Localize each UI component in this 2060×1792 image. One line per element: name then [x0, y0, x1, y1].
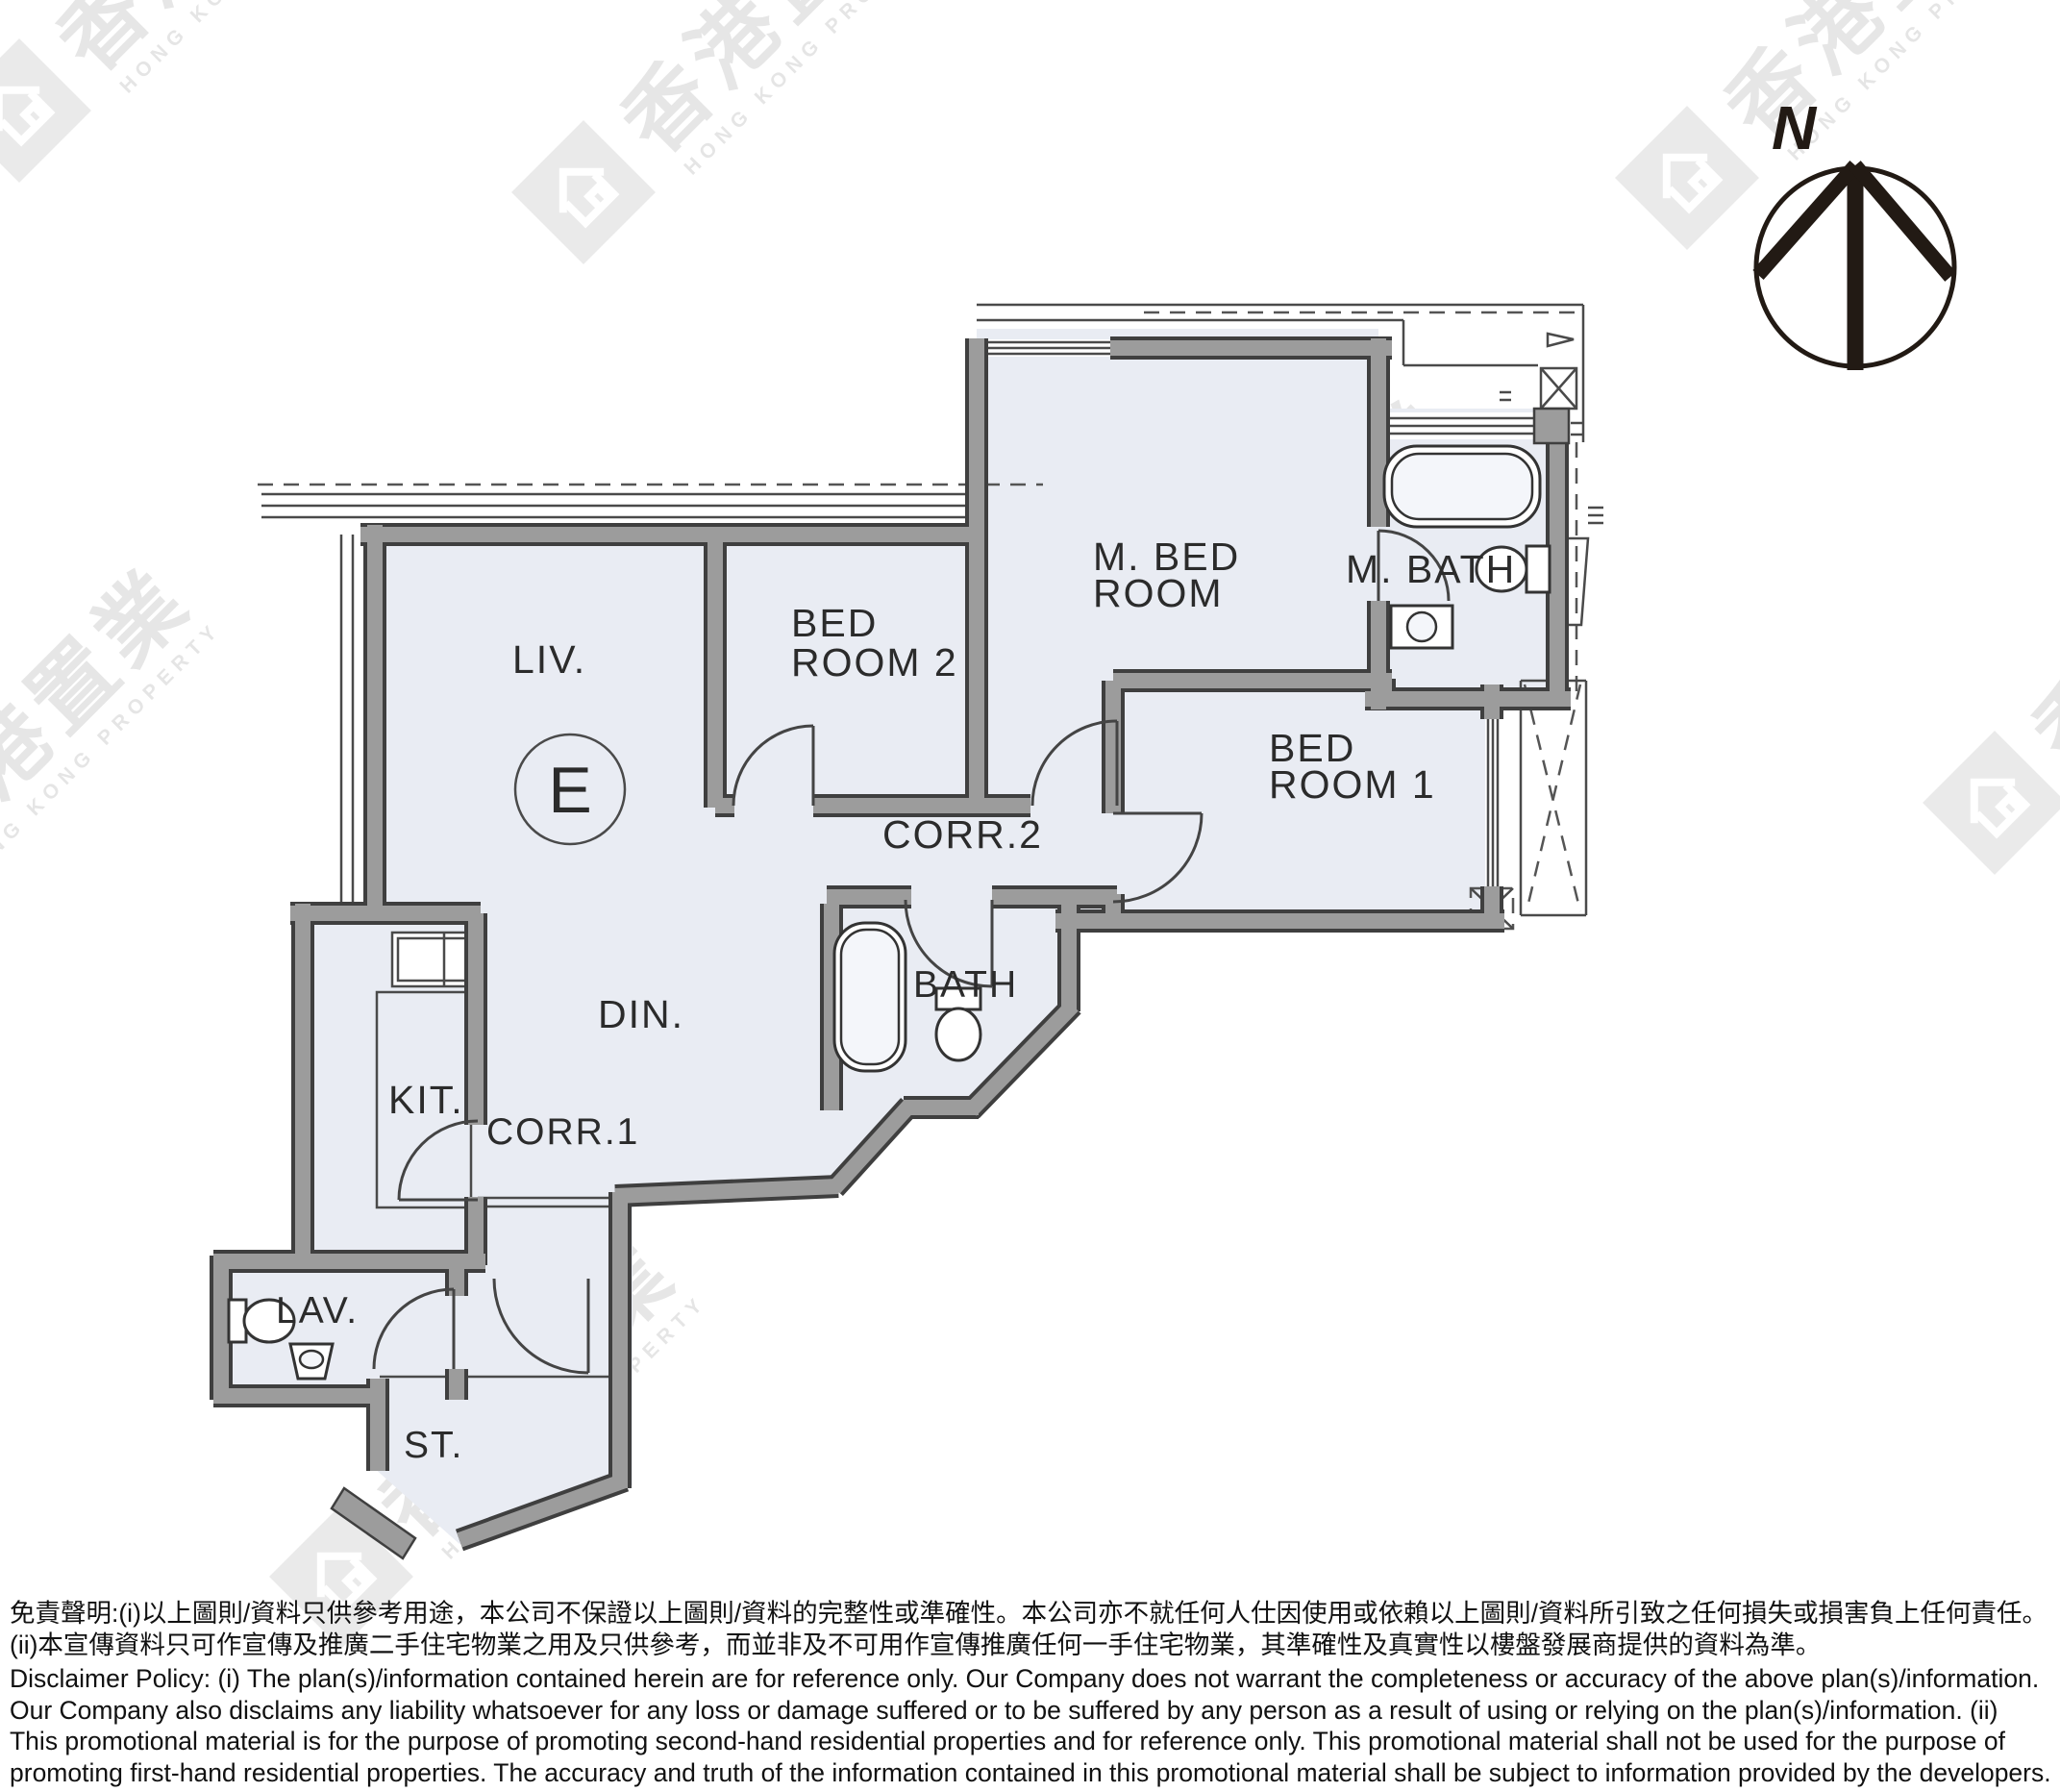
room-label-dining: DIN.	[598, 992, 684, 1036]
master-toilet-tank	[1526, 546, 1550, 592]
room-label-bath: BATH	[913, 964, 1018, 1006]
room-label-bedroom2-line2: ROOM 2	[791, 640, 958, 684]
room-label-master-bath: M. BATH	[1346, 547, 1516, 591]
room-label-kitchen: KIT.	[388, 1078, 464, 1122]
compass-icon: N	[1756, 93, 1954, 370]
room-label-corridor1: CORR.1	[486, 1111, 639, 1153]
room-label-master-bedroom-line2: ROOM	[1093, 571, 1224, 615]
wall-block	[1534, 409, 1569, 443]
unit-label: E	[548, 754, 591, 827]
disclaimer-block: 免責聲明:(i)以上圖則/資料只供參考用途，本公司不保證以上圖則/資料的完整性或…	[10, 1598, 2052, 1791]
disclaimer-text-zh: 免責聲明:(i)以上圖則/資料只供參考用途，本公司不保證以上圖則/資料的完整性或…	[10, 1598, 2052, 1661]
room-label-corridor2: CORR.2	[882, 812, 1043, 857]
compass-north-label: N	[1772, 93, 1818, 162]
room-label-store: ST.	[404, 1425, 463, 1466]
room-label-living: LIV.	[512, 637, 586, 682]
room-label-lavatory: LAV.	[276, 1290, 359, 1332]
floor-plan-page: 香港置業 HONG KONG PROPERTY	[0, 0, 2060, 1792]
toilet	[936, 1008, 980, 1060]
room-label-bedroom2-line1: BED	[791, 601, 878, 645]
floor-plan-svg: 香港置業 HONG KONG PROPERTY	[0, 0, 2060, 1792]
room-label-bedroom1-line2: ROOM 1	[1269, 762, 1436, 807]
disclaimer-text-en: Disclaimer Policy: (i) The plan(s)/infor…	[10, 1663, 2052, 1789]
